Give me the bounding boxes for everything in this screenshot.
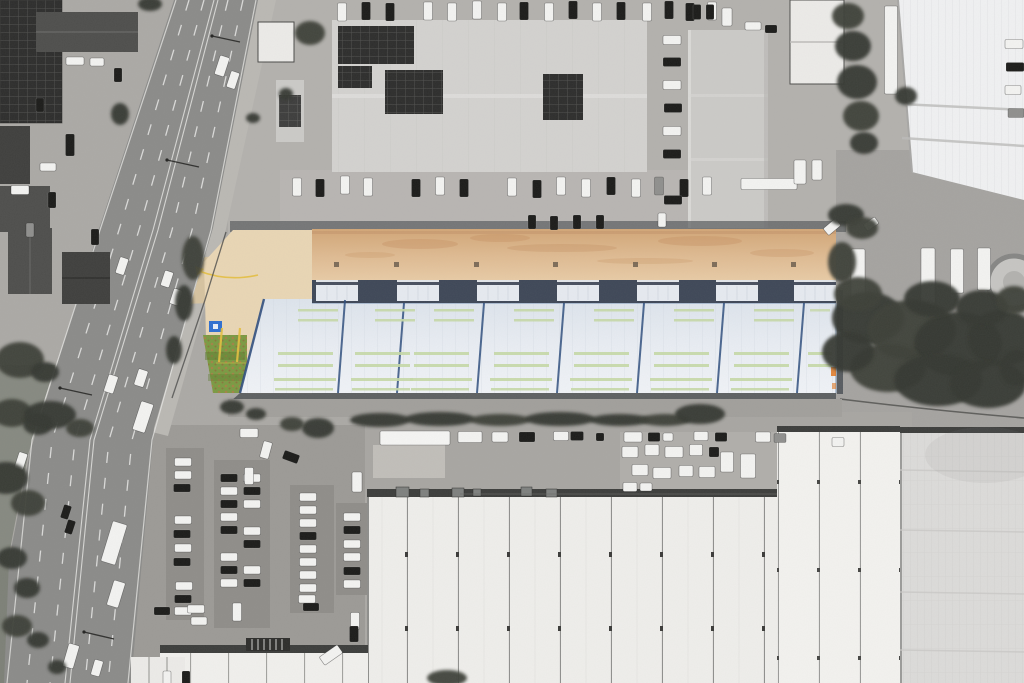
- aerial-photo-canvas: [0, 0, 1024, 683]
- aerial-photo: [0, 0, 1024, 683]
- grain-overlay: [0, 0, 1024, 683]
- photo-grain-overlay: [0, 0, 1024, 683]
